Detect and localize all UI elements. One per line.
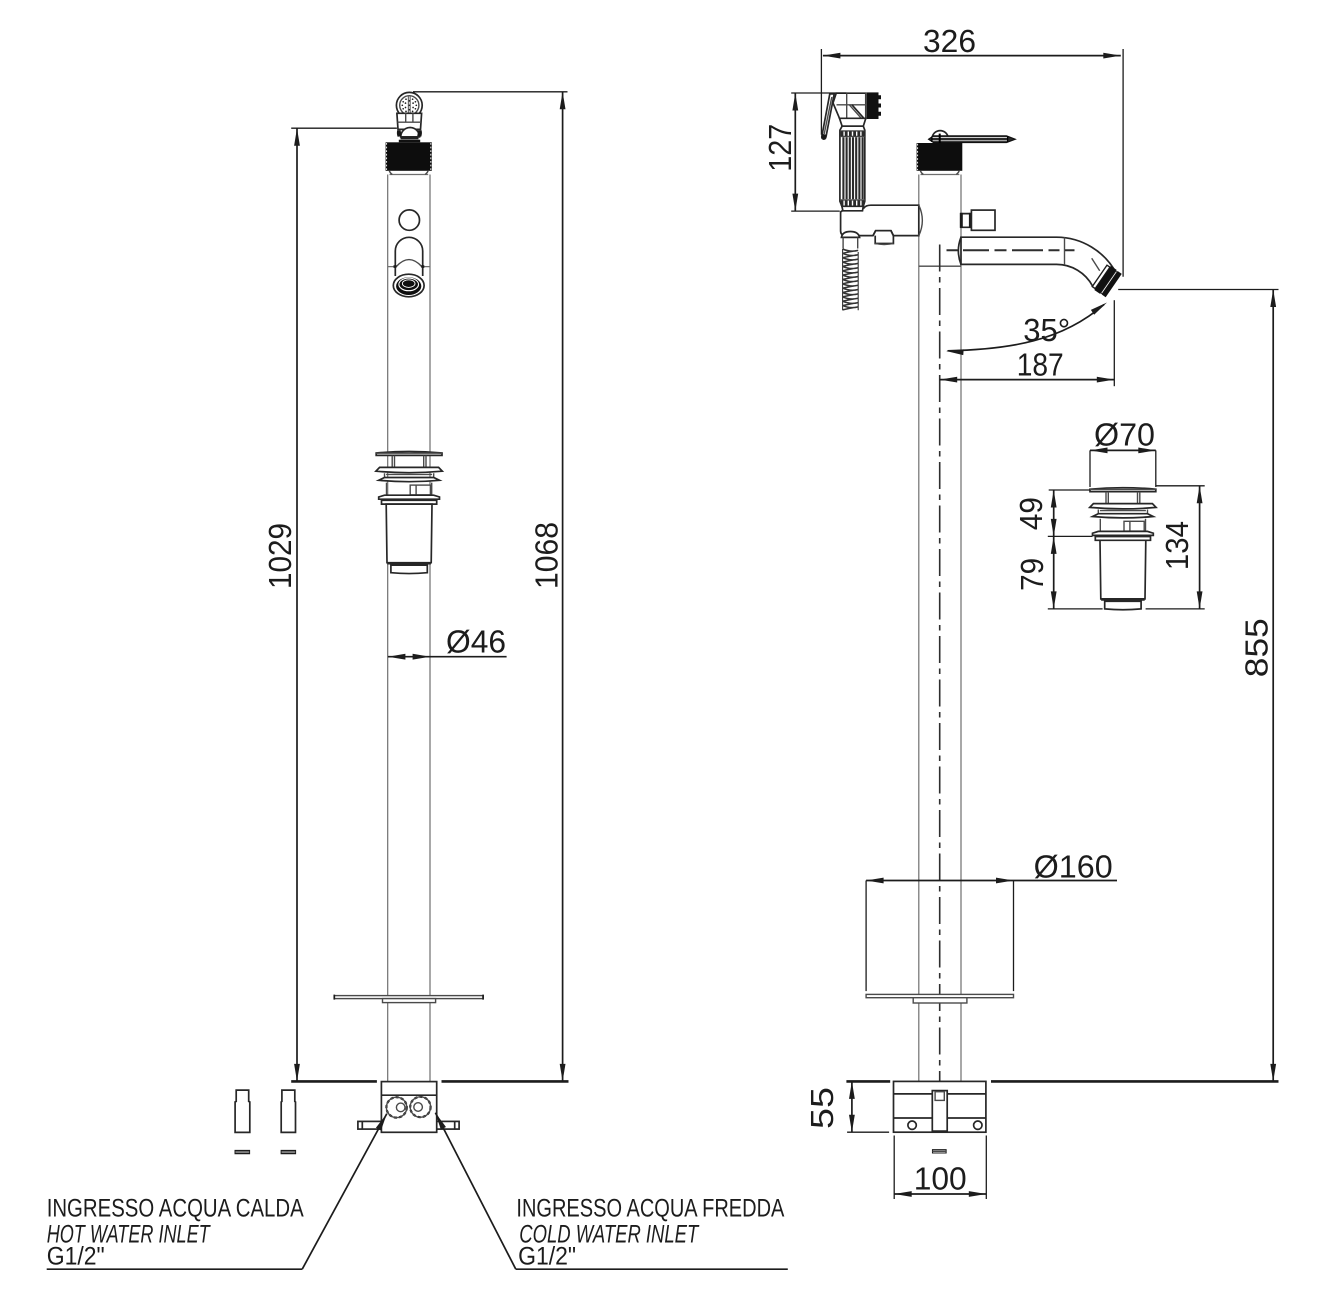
- svg-text:Ø46: Ø46: [446, 624, 506, 660]
- svg-text:855: 855: [1239, 618, 1275, 677]
- svg-text:35°: 35°: [1023, 312, 1070, 348]
- svg-text:INGRESSO ACQUA FREDDA: INGRESSO ACQUA FREDDA: [516, 1195, 784, 1223]
- svg-text:49: 49: [1013, 497, 1049, 530]
- svg-text:1068: 1068: [529, 522, 565, 589]
- svg-text:Ø70: Ø70: [1094, 416, 1155, 452]
- svg-text:Ø160: Ø160: [1034, 849, 1113, 885]
- svg-text:187: 187: [1017, 347, 1064, 383]
- svg-text:100: 100: [914, 1160, 967, 1196]
- svg-text:G1/2": G1/2": [47, 1243, 105, 1271]
- svg-text:INGRESSO ACQUA CALDA: INGRESSO ACQUA CALDA: [47, 1195, 304, 1223]
- svg-text:1029: 1029: [262, 523, 298, 589]
- svg-text:G1/2": G1/2": [518, 1243, 576, 1271]
- svg-text:79: 79: [1014, 558, 1050, 591]
- svg-text:326: 326: [923, 23, 976, 59]
- svg-text:55: 55: [804, 1087, 840, 1129]
- svg-text:134: 134: [1159, 521, 1195, 570]
- svg-text:127: 127: [762, 124, 798, 172]
